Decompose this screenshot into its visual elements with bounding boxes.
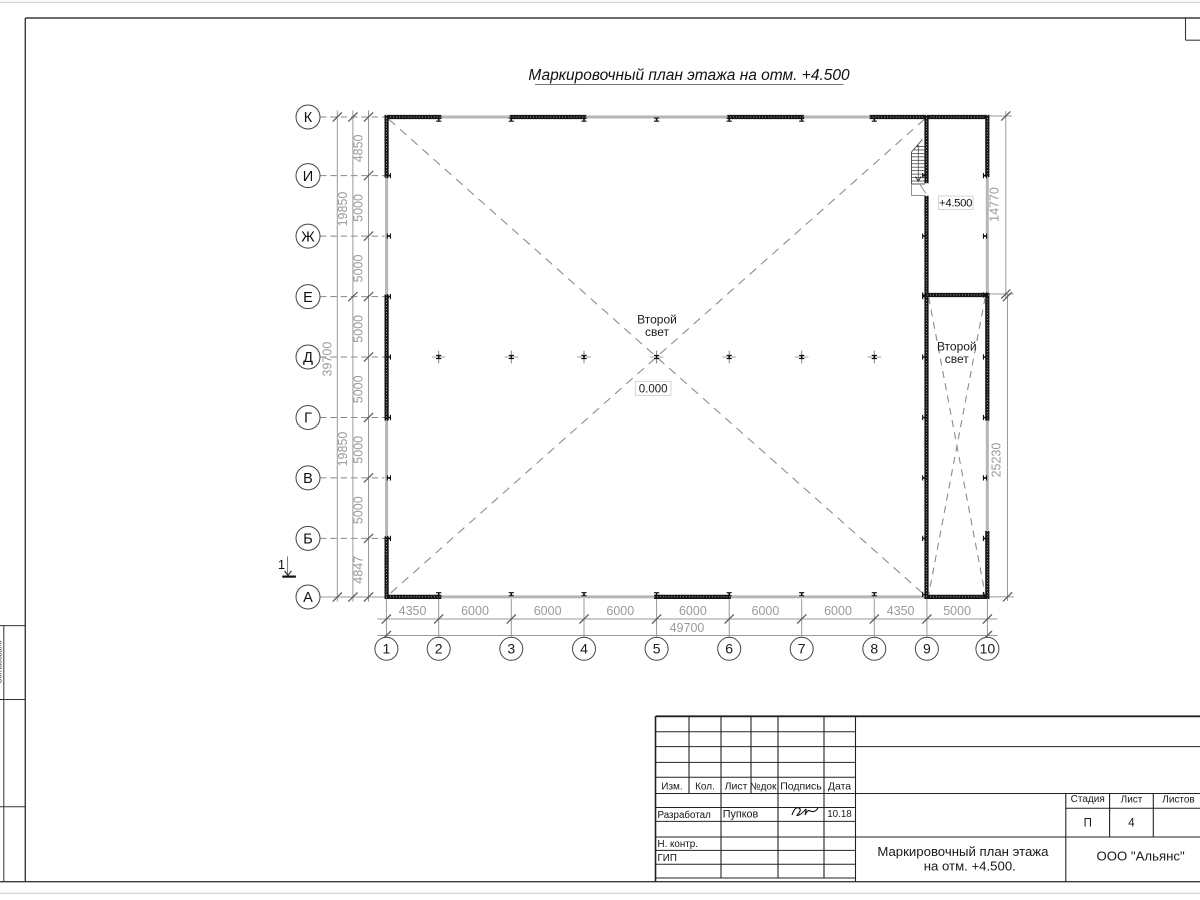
svg-text:4: 4 xyxy=(580,641,588,657)
svg-text:Стадия: Стадия xyxy=(1071,794,1105,805)
svg-text:5000: 5000 xyxy=(352,255,366,283)
svg-text:25230: 25230 xyxy=(990,443,1004,478)
svg-text:6000: 6000 xyxy=(606,604,634,618)
svg-text:К: К xyxy=(304,110,313,126)
svg-text:№док.: №док. xyxy=(750,782,779,793)
svg-text:Г: Г xyxy=(304,411,312,427)
svg-text:Б: Б xyxy=(303,532,313,548)
svg-text:6000: 6000 xyxy=(461,604,489,618)
svg-text:5: 5 xyxy=(653,641,661,657)
svg-text:свет: свет xyxy=(645,325,670,339)
svg-text:Подпись: Подпись xyxy=(780,781,822,793)
svg-text:А: А xyxy=(303,590,313,606)
svg-text:5000: 5000 xyxy=(352,496,366,524)
svg-text:ГИП: ГИП xyxy=(658,853,677,864)
svg-text:Маркировочный план этажа: Маркировочный план этажа xyxy=(877,844,1049,859)
svg-text:4350: 4350 xyxy=(887,604,915,618)
svg-text:19850: 19850 xyxy=(336,192,350,227)
svg-text:9: 9 xyxy=(923,641,931,657)
svg-text:3: 3 xyxy=(507,641,515,657)
svg-text:В: В xyxy=(303,471,313,487)
svg-text:4350: 4350 xyxy=(399,604,427,618)
svg-text:Изм.: Изм. xyxy=(661,782,682,793)
svg-text:6: 6 xyxy=(725,641,733,657)
svg-text:5000: 5000 xyxy=(352,194,366,222)
svg-text:4850: 4850 xyxy=(352,134,366,162)
svg-text:10: 10 xyxy=(980,641,996,657)
svg-text:Лист: Лист xyxy=(725,781,748,793)
svg-text:1: 1 xyxy=(278,557,285,572)
svg-text:Ж: Ж xyxy=(301,229,315,245)
svg-text:Д: Д xyxy=(303,350,313,366)
svg-text:8: 8 xyxy=(870,641,878,657)
svg-text:6000: 6000 xyxy=(824,604,852,618)
svg-text:Н. контр.: Н. контр. xyxy=(658,839,698,850)
svg-text:Листов: Листов xyxy=(1162,794,1195,805)
svg-text:5000: 5000 xyxy=(352,375,366,403)
svg-text:5000: 5000 xyxy=(943,604,971,618)
svg-text:6000: 6000 xyxy=(534,604,562,618)
svg-text:2: 2 xyxy=(435,641,443,657)
svg-text:6000: 6000 xyxy=(679,604,707,618)
svg-text:Маркировочный план этажа на от: Маркировочный план этажа на отм. +4.500 xyxy=(528,67,850,84)
svg-text:0.000: 0.000 xyxy=(639,383,668,395)
svg-text:19850: 19850 xyxy=(336,432,350,467)
svg-text:Дата: Дата xyxy=(828,781,851,793)
svg-text:6000: 6000 xyxy=(752,604,780,618)
svg-text:14770: 14770 xyxy=(987,187,1001,222)
svg-text:Разработал: Разработал xyxy=(658,810,712,821)
svg-text:И: И xyxy=(303,169,313,185)
svg-text:Пупков: Пупков xyxy=(723,809,759,821)
svg-text:39700: 39700 xyxy=(321,342,335,377)
svg-text:ООО "Альянс": ООО "Альянс" xyxy=(1097,849,1185,864)
svg-text:Лист: Лист xyxy=(1121,794,1143,805)
svg-text:+4.500: +4.500 xyxy=(939,198,972,210)
svg-text:5000: 5000 xyxy=(352,315,366,343)
svg-text:Кол.: Кол. xyxy=(695,782,715,793)
svg-text:на отм. +4.500.: на отм. +4.500. xyxy=(924,858,1016,873)
svg-text:10.18: 10.18 xyxy=(827,809,852,820)
svg-text:5000: 5000 xyxy=(352,436,366,464)
svg-text:свет: свет xyxy=(945,352,970,366)
svg-text:7: 7 xyxy=(798,641,806,657)
svg-text:Согласовано: Согласовано xyxy=(0,640,4,683)
svg-text:4: 4 xyxy=(1128,818,1135,830)
svg-text:Е: Е xyxy=(303,290,313,306)
svg-text:4847: 4847 xyxy=(352,556,366,584)
svg-text:1: 1 xyxy=(383,641,391,657)
svg-text:П: П xyxy=(1084,818,1092,830)
svg-text:49700: 49700 xyxy=(670,621,705,635)
